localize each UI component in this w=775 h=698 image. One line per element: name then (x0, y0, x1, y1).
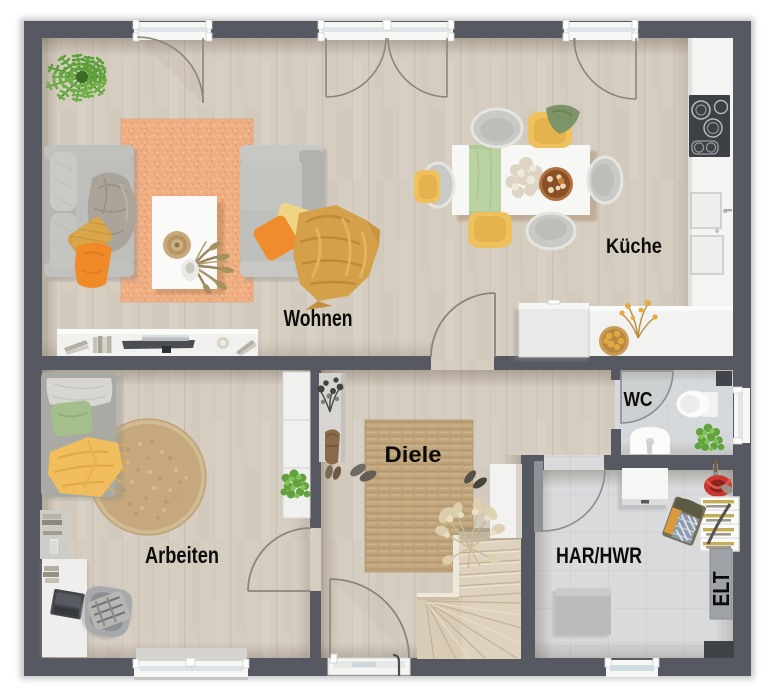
svg-text:Wohnen: Wohnen (284, 305, 353, 331)
svg-text:Arbeiten: Arbeiten (145, 542, 219, 568)
svg-text:ELT: ELT (708, 572, 734, 607)
svg-text:Küche: Küche (606, 234, 662, 258)
svg-text:WC: WC (624, 389, 653, 411)
svg-text:Diele: Diele (385, 442, 442, 467)
svg-text:HAR/HWR: HAR/HWR (556, 543, 642, 568)
